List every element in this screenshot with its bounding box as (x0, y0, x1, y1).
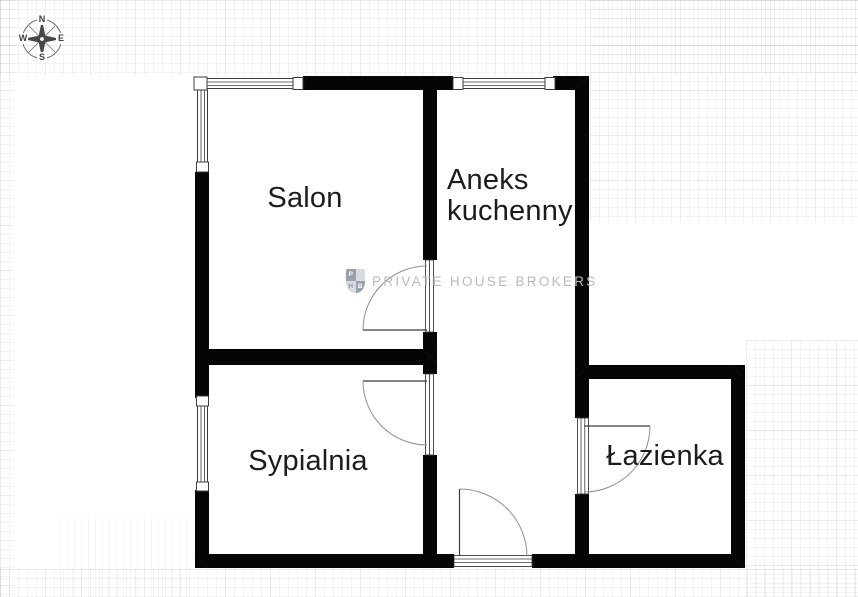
room-label-aneks: Aneks kuchenny (447, 165, 587, 227)
entrance-door-opening (454, 556, 532, 567)
logo-cell-p: P (346, 269, 356, 281)
sypialnia-door-opening (426, 374, 434, 455)
logo-cell-blank (356, 269, 366, 281)
floor-plan-page: { "rooms": [ { "label": "Salon" }, { "la… (0, 0, 858, 597)
room-label-lazienka: Łazienka (585, 441, 745, 472)
entrance-door (460, 489, 528, 557)
window-left-upper (197, 90, 209, 172)
window-left-lower (197, 396, 209, 491)
walls (195, 76, 745, 568)
room-label-salon: Salon (220, 183, 390, 214)
logo-cell-b: B (356, 281, 366, 293)
logo-cell-h: H (346, 281, 356, 293)
floor-plan-drawing (0, 0, 858, 597)
watermark: P H B PRIVATE HOUSE BROKERS (346, 268, 598, 294)
wall-miter-marks (195, 76, 745, 568)
doors (363, 266, 650, 557)
sypialnia-door (363, 381, 427, 445)
door-openings (426, 260, 589, 567)
room-label-sypialnia: Sypialnia (228, 446, 388, 477)
watermark-text: PRIVATE HOUSE BROKERS (372, 274, 598, 289)
window-top-left (194, 77, 303, 90)
private-house-brokers-logo-icon: P H B (346, 269, 365, 293)
window-top-right (453, 78, 555, 90)
